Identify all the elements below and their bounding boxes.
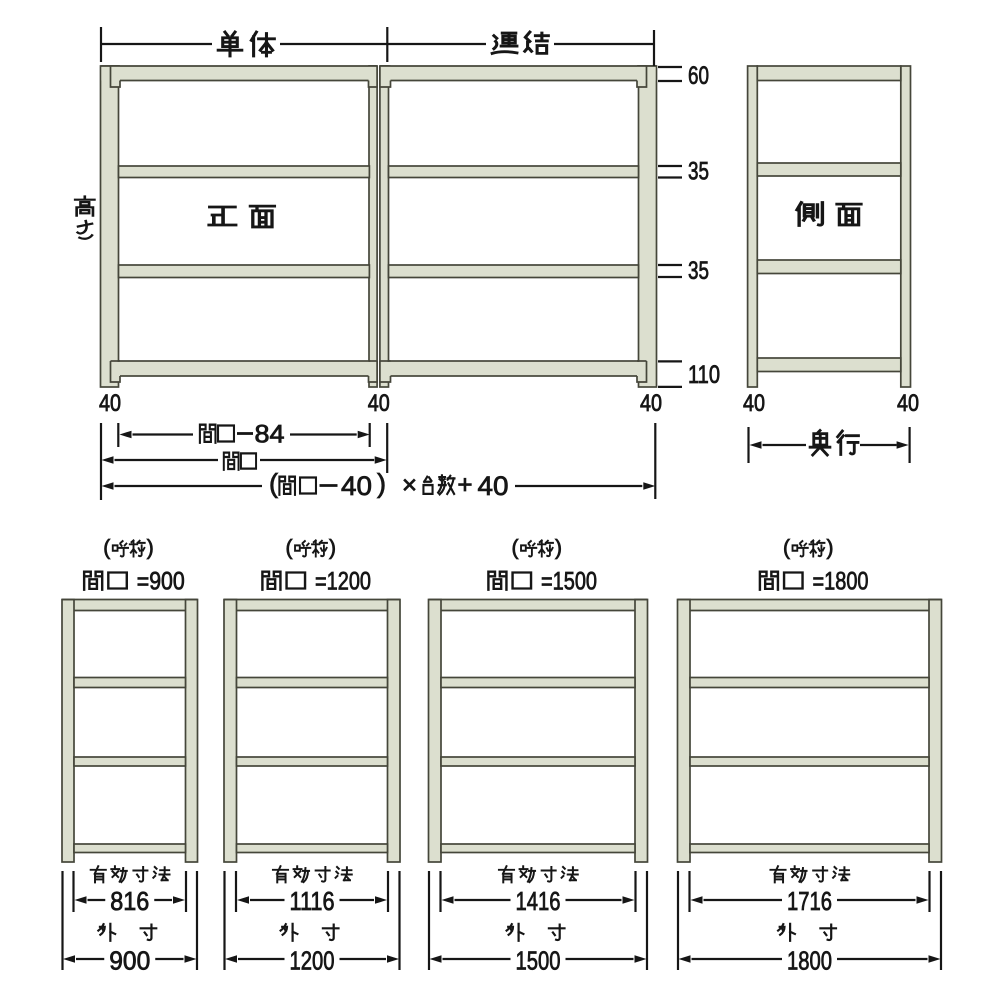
- svg-text:): ): [555, 537, 562, 560]
- svg-text:(: (: [269, 469, 278, 499]
- svg-text:(: (: [103, 537, 110, 560]
- svg-text:=1200: =1200: [315, 568, 371, 596]
- svg-text:60: 60: [688, 62, 709, 90]
- svg-text:×: ×: [402, 470, 417, 500]
- svg-text:): ): [377, 469, 386, 499]
- svg-text:1500: 1500: [516, 946, 561, 976]
- svg-text:(: (: [286, 537, 293, 560]
- svg-text:(: (: [512, 537, 519, 560]
- svg-text:35: 35: [688, 257, 709, 285]
- svg-text:): ): [329, 537, 336, 560]
- svg-text:40: 40: [897, 390, 919, 417]
- svg-text:900: 900: [109, 946, 150, 976]
- svg-text:=1500: =1500: [541, 568, 597, 596]
- svg-text:40: 40: [368, 390, 390, 417]
- svg-text:40: 40: [743, 390, 765, 417]
- svg-text:35: 35: [688, 158, 709, 186]
- svg-text:+: +: [457, 470, 472, 500]
- svg-text:=900: =900: [137, 568, 185, 596]
- svg-text:40: 40: [478, 471, 509, 501]
- svg-text:(: (: [783, 537, 790, 560]
- svg-text:1716: 1716: [787, 886, 832, 916]
- svg-text:=1800: =1800: [813, 568, 869, 596]
- svg-text:): ): [147, 537, 154, 560]
- svg-text:): ): [827, 537, 834, 560]
- svg-text:816: 816: [110, 886, 149, 916]
- svg-text:40: 40: [640, 390, 662, 417]
- svg-text:84: 84: [255, 421, 285, 449]
- svg-text:40: 40: [99, 390, 121, 417]
- svg-text:1800: 1800: [787, 946, 832, 976]
- svg-text:1116: 1116: [290, 886, 335, 916]
- svg-text:1200: 1200: [290, 946, 335, 976]
- svg-text:110: 110: [688, 361, 720, 389]
- svg-text:1416: 1416: [516, 886, 561, 916]
- svg-text:40: 40: [341, 471, 372, 501]
